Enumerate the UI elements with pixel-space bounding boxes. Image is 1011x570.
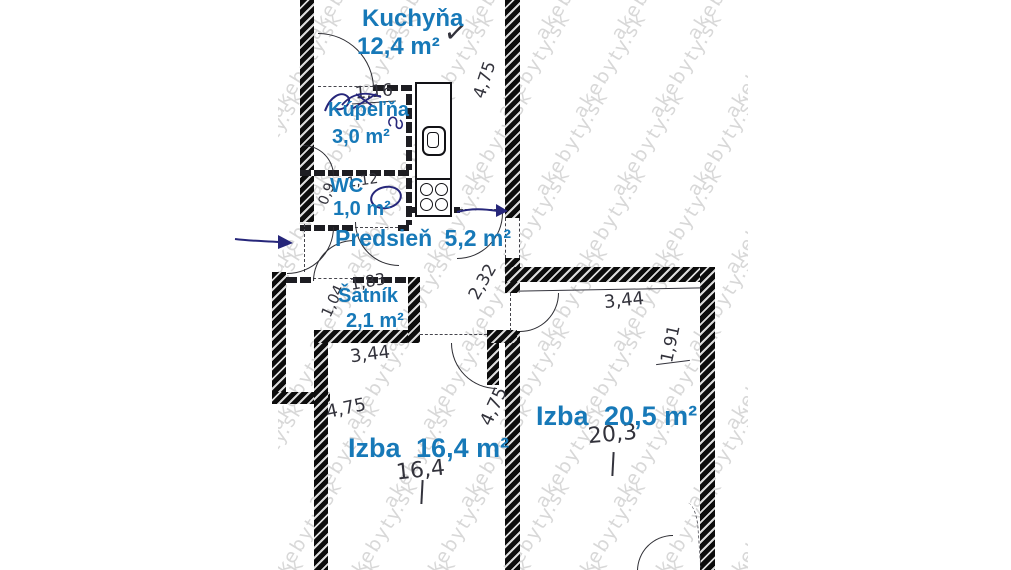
- room-area: 3,0 m²: [328, 127, 409, 148]
- room-area: 1,0 m²: [330, 199, 391, 220]
- wall-left-lower: [272, 272, 286, 402]
- door-line-izba1: [420, 334, 487, 335]
- room-area: 16,4 m²: [416, 433, 509, 463]
- room-label-satnik: Šatník 2,1 m²: [338, 286, 404, 332]
- main-door-arrow-icon: [456, 200, 510, 222]
- sink-basin-icon: [427, 132, 439, 148]
- wall-izba2-right: [700, 267, 715, 570]
- wall-left-upper: [300, 0, 314, 222]
- room-area: 20,5 m²: [604, 401, 697, 431]
- wall-satnik-right: [408, 277, 420, 343]
- stove-burner-icon: [435, 183, 448, 196]
- stove-burner-icon: [420, 183, 433, 196]
- wall-izba1-left: [314, 332, 328, 570]
- stove-burner-icon: [420, 198, 433, 211]
- floorplan-canvas: akebyty.skakebyty.skakebyty.skakebyty.sk…: [0, 0, 1011, 570]
- room-name: Predsieň: [335, 225, 432, 251]
- room-name: WC: [330, 176, 391, 197]
- room-area: 12,4 m²: [357, 34, 463, 59]
- room-label-predsien: Predsieň 5,2 m²: [335, 226, 511, 250]
- room-label-kupelna: Kúpeľňa 3,0 m²: [328, 100, 409, 148]
- room-name: Šatník: [338, 286, 404, 307]
- room-label-wc: WC 1,0 m²: [330, 176, 391, 220]
- wall-izba2-top: [505, 267, 715, 282]
- room-label-izba-velka: Izba 20,5 m²: [536, 402, 697, 430]
- room-name: Izba: [348, 433, 401, 463]
- dimension-annotation: 3,44: [603, 288, 645, 313]
- room-name: Izba: [536, 401, 589, 431]
- stove-icon: [415, 178, 452, 217]
- room-area: 2,1 m²: [338, 311, 404, 332]
- wall-middle-upper: [505, 0, 520, 218]
- entrance-arrow-icon: [234, 230, 296, 254]
- wall-izba1-top-right: [487, 330, 517, 343]
- room-name: Kuchyňa: [357, 6, 463, 31]
- door-line-izba2: [510, 293, 511, 331]
- stove-burner-icon: [435, 198, 448, 211]
- room-name: Kúpeľňa: [328, 100, 409, 121]
- room-area: 5,2 m²: [445, 225, 511, 251]
- partition-predsien-satnik-left: [286, 277, 313, 283]
- room-label-kuchyna: Kuchyňa 12,4 m²: [357, 6, 463, 59]
- room-label-izba-mala: Izba 16,4 m²: [348, 434, 509, 462]
